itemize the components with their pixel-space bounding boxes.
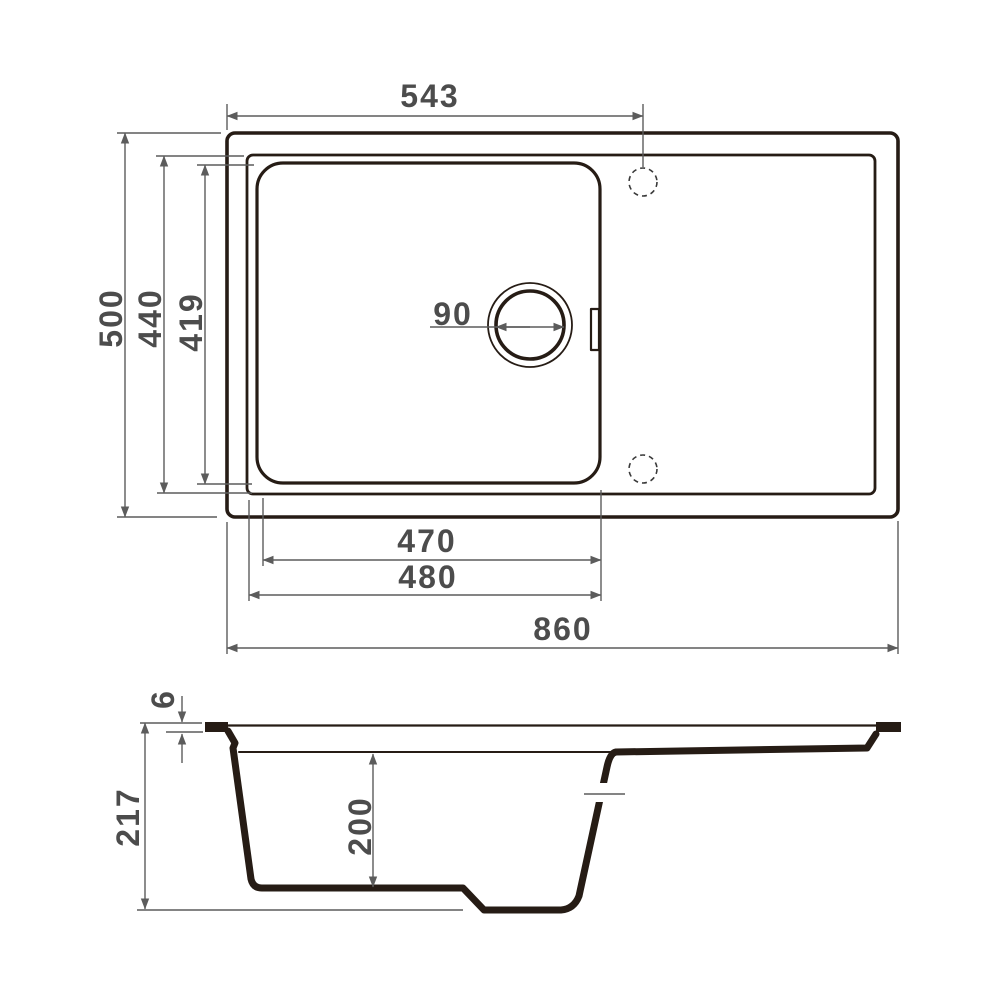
bowl-outline (257, 163, 600, 483)
dim-470-label: 470 (397, 523, 456, 559)
rim-right-cap (876, 722, 901, 732)
dim-90-label: 90 (433, 296, 473, 332)
tap-hole-top (629, 168, 657, 196)
dim-543-label: 543 (400, 78, 459, 114)
section-profile (228, 731, 876, 910)
dim-500-label: 500 (93, 288, 129, 347)
dim-6-label: 6 (145, 689, 181, 709)
tap-hole-bottom (629, 455, 657, 483)
sink-dimension-drawing: 543 500 440 419 90 470 480 860 (0, 0, 1000, 1000)
overflow-notch (591, 309, 599, 350)
dim-860-label: 860 (533, 611, 592, 647)
dim-419-label: 419 (173, 292, 209, 351)
top-view: 543 500 440 419 90 470 480 860 (93, 78, 898, 654)
drawing-canvas: 543 500 440 419 90 470 480 860 (0, 0, 1000, 1000)
dim-200-label: 200 (342, 796, 378, 855)
wall-break-gap (594, 783, 608, 802)
side-view: 6 217 200 (110, 689, 901, 910)
dim-217-label: 217 (110, 787, 146, 846)
dim-440-label: 440 (132, 288, 168, 347)
dim-480-label: 480 (398, 559, 457, 595)
